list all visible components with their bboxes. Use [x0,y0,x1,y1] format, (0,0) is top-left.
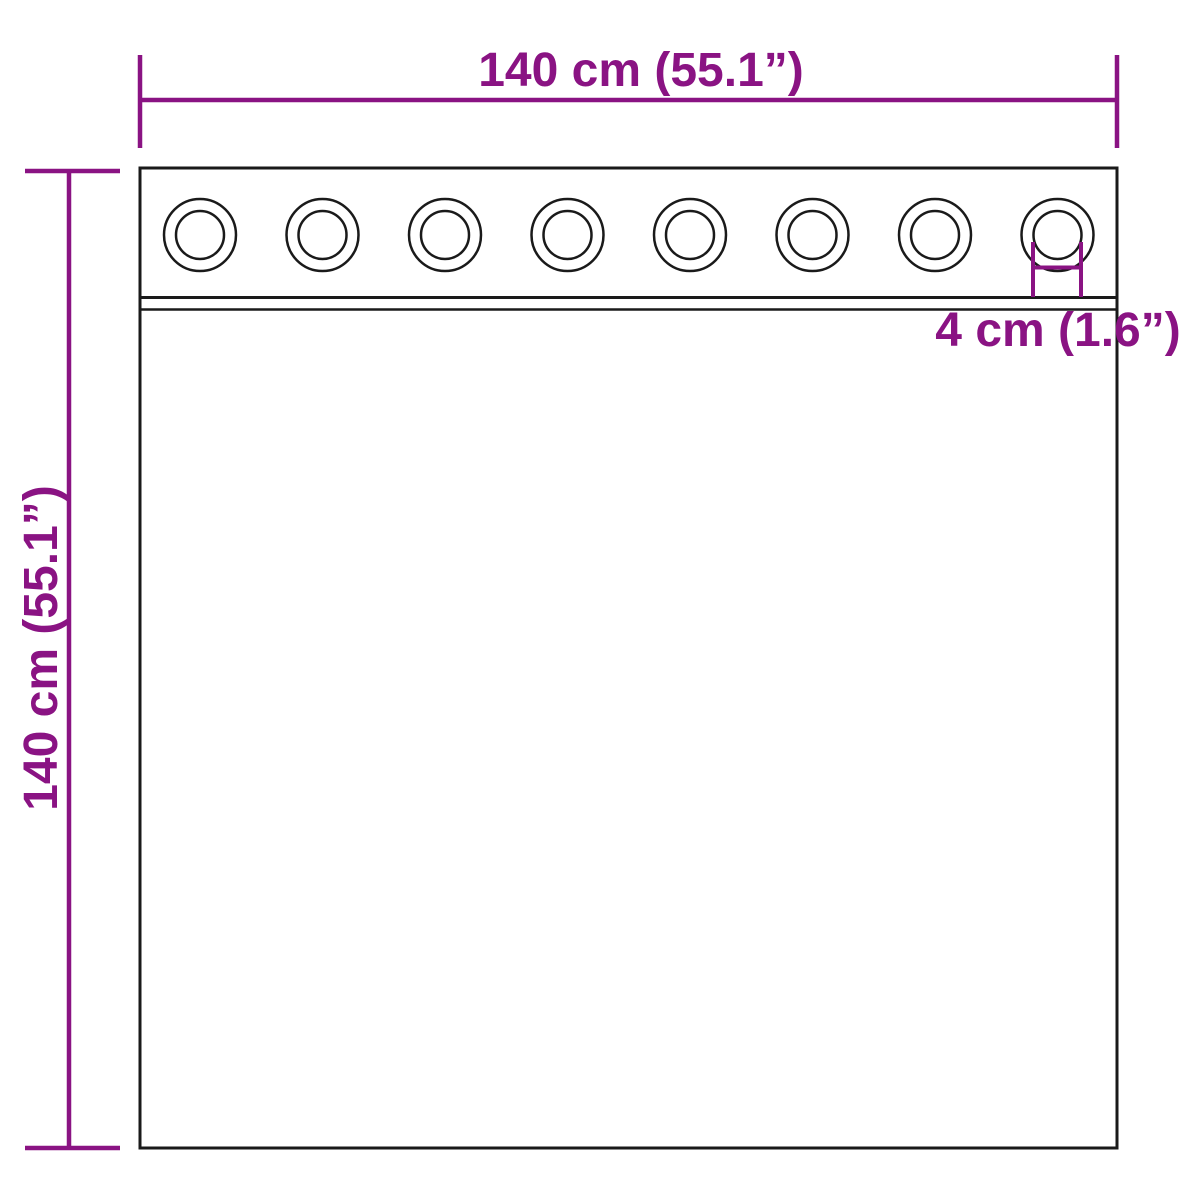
grommet-size-label: 4 cm (1.6”) [935,304,1180,357]
grommet-inner-ring [176,211,224,259]
grommet-inner-ring [911,211,959,259]
grommet-inner-ring [1034,211,1082,259]
grommet [654,199,726,271]
grommet [532,199,604,271]
grommet-inner-ring [421,211,469,259]
grommet [409,199,481,271]
grommet [777,199,849,271]
width-dimension-label: 140 cm (55.1”) [478,44,804,97]
curtain-dimension-diagram: 140 cm (55.1”) 140 cm (55.1”) 4 cm (1.6”… [0,0,1200,1200]
diagram-canvas: 140 cm (55.1”) 140 cm (55.1”) 4 cm (1.6”… [0,0,1200,1200]
grommet-inner-ring [789,211,837,259]
grommet [287,199,359,271]
dimension-labels: 140 cm (55.1”) 140 cm (55.1”) 4 cm (1.6”… [15,44,1181,811]
grommet [164,199,236,271]
grommet-inner-ring [544,211,592,259]
grommet-inner-ring [299,211,347,259]
height-dimension-label: 140 cm (55.1”) [15,485,68,811]
grommet-inner-ring [666,211,714,259]
grommet [899,199,971,271]
grommets [164,199,1094,271]
